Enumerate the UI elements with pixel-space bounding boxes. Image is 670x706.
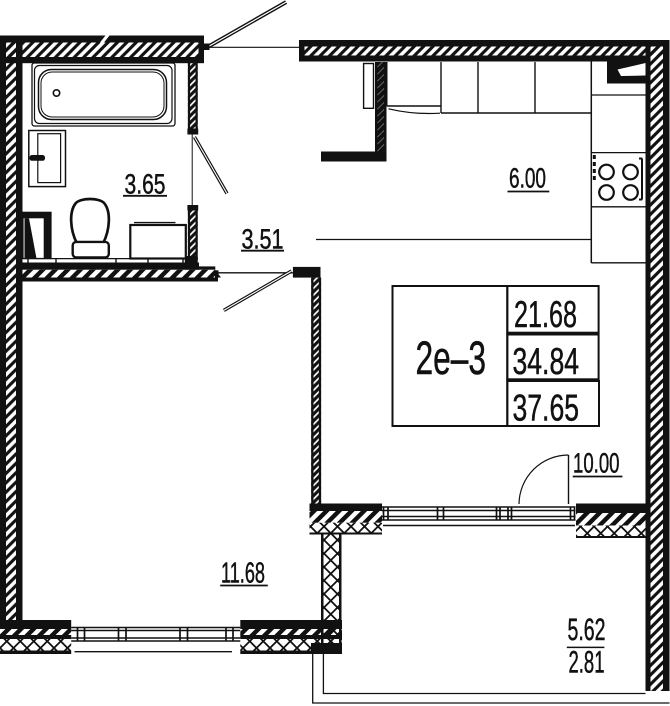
svg-text:2.81: 2.81	[569, 645, 605, 680]
svg-text:2e–3: 2e–3	[416, 331, 487, 384]
svg-text:37.65: 37.65	[513, 387, 580, 429]
svg-text:10.00: 10.00	[573, 448, 620, 479]
svg-text:21.68: 21.68	[514, 293, 577, 335]
svg-text:34.84: 34.84	[513, 340, 580, 382]
svg-text:3.65: 3.65	[125, 169, 166, 200]
svg-text:5.62: 5.62	[568, 612, 606, 647]
svg-text:6.00: 6.00	[509, 163, 546, 194]
